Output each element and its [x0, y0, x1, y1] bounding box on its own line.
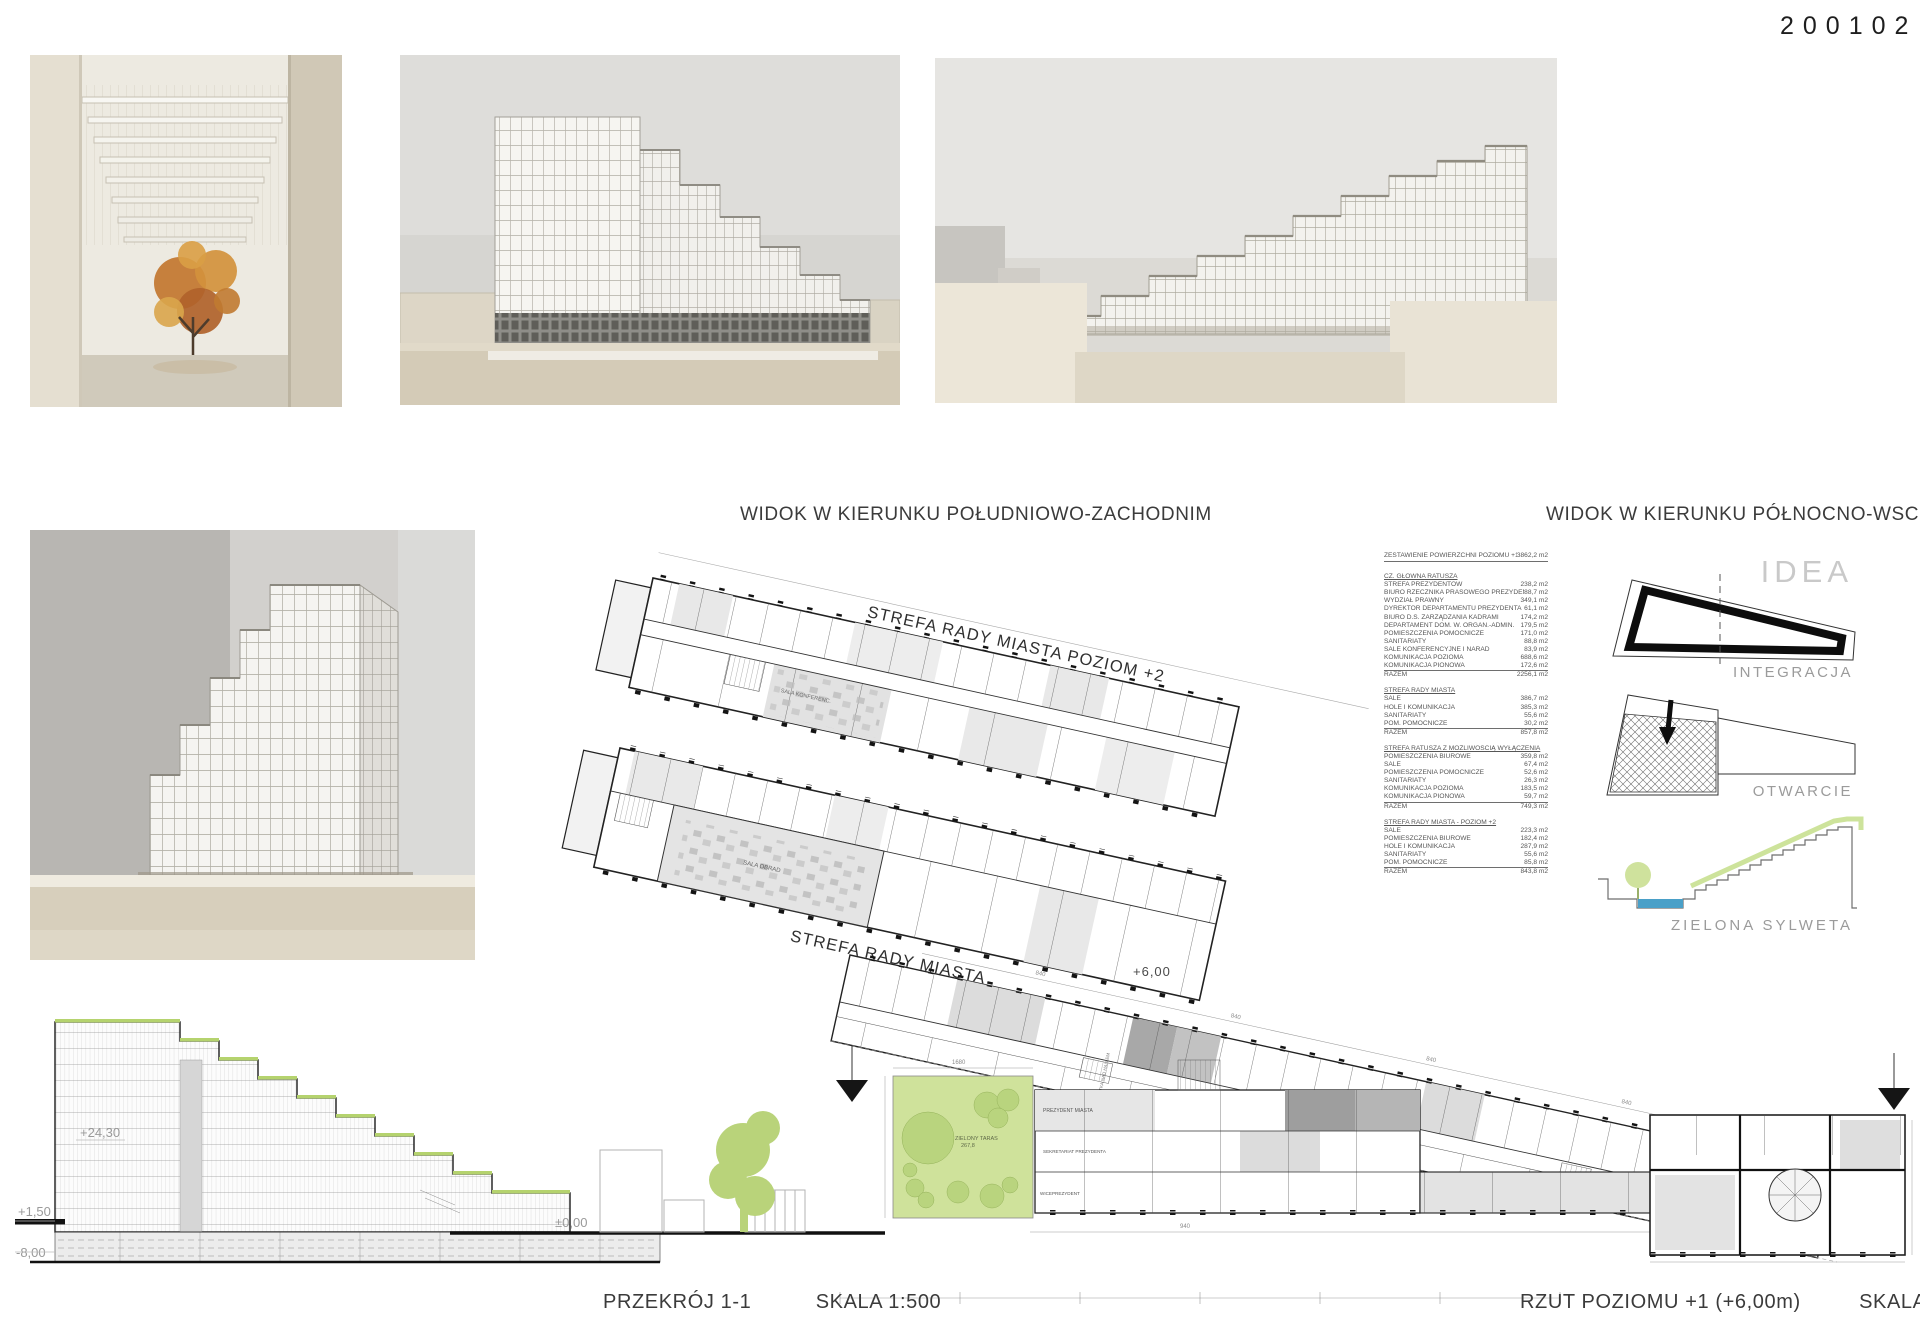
dim-840a: 840 — [1035, 970, 1047, 978]
section-title: PRZEKRÓJ 1-1 — [603, 1291, 751, 1313]
table-row: KOMUNIKACJA POZIOMA183,5 m2 — [1384, 785, 1548, 793]
green-profile-line — [1691, 819, 1861, 886]
page-number: 200102 — [1780, 12, 1917, 41]
table-row: SALE223,3 m2 — [1384, 827, 1548, 835]
integracja-label: INTEGRACJA — [1733, 664, 1853, 681]
table-row: WYDZIAŁ PRAWNY349,1 m2 — [1384, 597, 1548, 605]
table-section-title: STREFA RATUSZA Z MOŻLIWOŚCIĄ WYŁĄCZENIA — [1384, 745, 1548, 753]
fg-wall-right — [1390, 301, 1557, 403]
table-section-title: CZ. GŁÓWNA RATUSZA — [1384, 573, 1548, 581]
dim-1680: 1680 — [952, 1060, 966, 1066]
fg-wall-center — [1075, 352, 1405, 403]
area-table: ZESTAWIENIE POWIERZCHNI POZIOMU +13862,2… — [1384, 552, 1548, 876]
presentation-board: 200102 — [0, 0, 1920, 1344]
dim-840c: 840 — [1425, 1056, 1437, 1064]
otwarcie-label: OTWARCIE — [1753, 783, 1853, 800]
room-label-sekretariat: SEKRETARIAT PREZYDENTA — [1043, 1149, 1107, 1154]
section-basement — [30, 1232, 660, 1262]
plan-right-block — [1650, 1115, 1912, 1262]
table-row: HOLE I KOMUNIKACJA385,3 m2 — [1384, 704, 1548, 712]
diagram-integracja: INTEGRACJA — [1613, 574, 1855, 681]
table-row: SANITARIATY88,8 m2 — [1384, 638, 1548, 646]
table-row: STREFA PREZYDENTÓW238,2 m2 — [1384, 581, 1548, 589]
table-row: SALE386,7 m2 — [1384, 695, 1548, 703]
building-section: +24,30 ±0,00 +1,50 -8,00 — [10, 1000, 890, 1300]
model-photo-courtyard — [30, 55, 342, 407]
plan-scale: SKALA 1:250 — [1859, 1291, 1920, 1313]
section-tree — [709, 1111, 780, 1232]
terrace-area: 267,8 — [961, 1143, 975, 1149]
diagram-zielona-sylweta: ZIELONA SYLWETA — [1598, 819, 1861, 934]
table-row: RAZEM843,8 m2 — [1384, 867, 1548, 876]
table-row: POMIESZCZENIA BIUROWE182,4 m2 — [1384, 835, 1548, 843]
terrace-label: ZIELONY TARAS — [955, 1136, 998, 1142]
concept-diagrams: IDEA INTEGRACJA OTWARCIE ZIELONA SYLWETA — [1595, 548, 1920, 948]
table-section-title: STREFA RADY MIASTA — [1384, 687, 1548, 695]
water-pool — [1638, 899, 1683, 908]
plaza-slab — [15, 1219, 65, 1225]
table-row: POMIESZCZENIA BIUROWE359,8 m2 — [1384, 753, 1548, 761]
room-label-prezydent: PREZYDENT MIASTA — [1043, 1108, 1093, 1114]
bg-block-left — [400, 293, 495, 351]
table-row: HOLE I KOMUNIKACJA287,9 m2 — [1384, 843, 1548, 851]
tree-circle — [1625, 862, 1651, 888]
table-row: BIURO RZECZNIKA PRASOWEGO PREZYDENTA88,7… — [1384, 589, 1548, 597]
dim-940: 940 — [1180, 1224, 1191, 1230]
left-wall — [30, 55, 82, 407]
level-top: +24,30 — [80, 1125, 120, 1140]
table-row: RAZEM749,3 m2 — [1384, 802, 1548, 811]
caption-northeast: WIDOK W KIERUNKU PÓŁNOCNO-WSCHODNIM — [1546, 504, 1920, 526]
table-row: KOMUNIKACJA POZIOMA688,6 m2 — [1384, 654, 1548, 662]
table-row: SANITARIATY26,3 m2 — [1384, 777, 1548, 785]
plan-title: RZUT POZIOMU +1 (+6,00m) — [1520, 1291, 1801, 1313]
table-row: DYREKTOR DEPARTAMENTU PREZYDENTA61,1 m2 — [1384, 605, 1548, 613]
level-zero: ±0,00 — [555, 1215, 587, 1230]
table-row — [1384, 679, 1548, 687]
diagram-otwarcie: OTWARCIE — [1607, 695, 1855, 800]
right-wall — [288, 55, 342, 407]
model-photo-northeast — [935, 58, 1557, 403]
level-basement: -8,00 — [16, 1245, 46, 1260]
table-row: SALE KONFERENCYJNE I NARAD83,9 m2 — [1384, 646, 1548, 654]
room-label-wiceprezydent: WICEPREZYDENT — [1040, 1191, 1080, 1196]
table-row: BIURO D.S. ZARZĄDZANIA KADRAMI174,2 m2 — [1384, 614, 1548, 622]
table-row: SANITARIATY55,6 m2 — [1384, 712, 1548, 720]
table-row: ZESTAWIENIE POWIERZCHNI POZIOMU +13862,2… — [1384, 552, 1548, 562]
level-label: +6,00 — [1133, 964, 1171, 979]
level-plaza: +1,50 — [18, 1204, 51, 1219]
model-photo-tower — [30, 530, 475, 960]
zielony-taras: 1680 ZIELONY TARAS 267,8 — [885, 1060, 1033, 1218]
model-photo-southwest — [400, 55, 900, 405]
section-scale: SKALA 1:500 — [816, 1291, 942, 1313]
table-row: POMIESZCZENIA POMOCNICZE52,6 m2 — [1384, 769, 1548, 777]
table-section-title: STREFA RADY MIASTA - POZIOM +2 — [1384, 819, 1548, 827]
dim-840d: 840 — [1621, 1099, 1633, 1107]
table-row: RAZEM857,8 m2 — [1384, 728, 1548, 737]
section-caption: PRZEKRÓJ 1-1 SKALA 1:500 — [603, 1291, 941, 1314]
idea-title: IDEA — [1761, 554, 1853, 589]
table-row — [1384, 811, 1548, 819]
table-row: DEPARTAMENT DOM. W. ORGAN.-ADMIN.179,5 m… — [1384, 622, 1548, 630]
dim-840b: 840 — [1230, 1013, 1242, 1021]
overall-dim-line — [840, 1292, 1560, 1304]
zielona-label: ZIELONA SYLWETA — [1671, 917, 1853, 934]
caption-southwest: WIDOK W KIERUNKU POŁUDNIOWO-ZACHODNIM — [740, 504, 1212, 526]
table-row: POM. POMOCNICZE30,2 m2 — [1384, 720, 1548, 728]
table-row: KOMUNIKACJA PIONOWA172,6 m2 — [1384, 662, 1548, 670]
plan-caption: RZUT POZIOMU +1 (+6,00m) SKALA 1:250 — [1520, 1291, 1920, 1314]
table-row — [1384, 565, 1548, 573]
fg-wall-left — [935, 283, 1087, 403]
table-row: POMIESZCZENIA POMOCNICZE171,0 m2 — [1384, 630, 1548, 638]
table-row: KOMUNIKACJA PIONOWA59,7 m2 — [1384, 793, 1548, 801]
table-row: RAZEM2256,1 m2 — [1384, 670, 1548, 679]
table-row: SANITARIATY55,6 m2 — [1384, 851, 1548, 859]
section-building — [55, 1019, 570, 1262]
table-row: SALE67,4 m2 — [1384, 761, 1548, 769]
table-row — [1384, 737, 1548, 745]
table-row: POM. POMOCNICZE85,8 m2 — [1384, 859, 1548, 867]
